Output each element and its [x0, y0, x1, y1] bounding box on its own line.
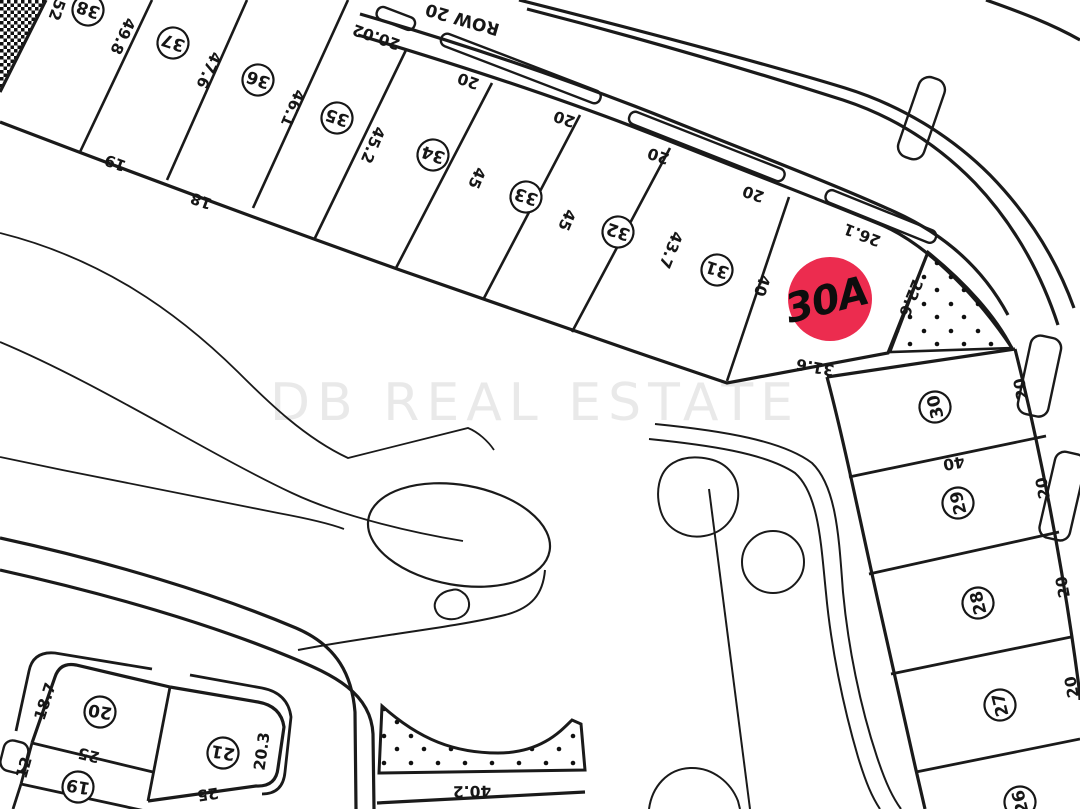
shore-curve [298, 570, 545, 650]
lot-35-marker: 35 [317, 98, 356, 137]
dim-47-6: 47.6 [192, 49, 224, 91]
lot-21-marker: 21 [205, 735, 241, 771]
dim-right-20-d: 20 [1061, 674, 1080, 699]
lot-30a-badge: 30A [781, 257, 873, 341]
lot-26-marker: 26 [1001, 783, 1039, 809]
road-upper-edge-1 [519, 0, 1074, 308]
dim-right-40: 40 [941, 452, 966, 474]
mound-arc [649, 768, 740, 809]
dim-31-6: 31.6 [795, 355, 836, 379]
lot-21-number: 21 [210, 740, 237, 764]
plat-map: DB REAL ESTATE [0, 0, 1080, 809]
setback-strip-lot-30 [1016, 334, 1063, 419]
road-upper-edge-2 [527, 9, 1058, 325]
pond-outline [360, 470, 559, 600]
dim-52: 52 [45, 0, 69, 23]
lot-38-marker: 38 [68, 0, 107, 30]
lot-20-marker: 20 [82, 694, 118, 730]
lot-31-marker: 31 [697, 250, 736, 289]
dim-street-20-d: 20 [740, 182, 766, 206]
block-left-edge-lower [13, 784, 21, 809]
dim-right-20-a: 20 [1010, 376, 1032, 401]
lot-20-number: 20 [87, 699, 114, 723]
lot-33-marker: 33 [506, 177, 545, 216]
dim-40-2: 40.2 [453, 782, 492, 801]
right-block-top-edge [827, 349, 1015, 377]
lot-36-marker: 36 [238, 60, 277, 99]
stippled-crescent-area [379, 706, 585, 773]
street-outer-edge [360, 14, 1008, 315]
leader-line [709, 489, 750, 809]
lot-28-marker: 28 [959, 584, 997, 622]
lot-30-marker: 30 [916, 388, 954, 426]
dim-front-19: 19 [102, 151, 128, 175]
dim-front-18: 18 [188, 189, 214, 213]
lot-19-number: 19 [65, 774, 92, 798]
lot-line-27-26 [916, 739, 1080, 772]
lot-29-marker: 29 [939, 484, 977, 522]
dim-street-20-c: 20 [645, 144, 671, 168]
dim-20-3: 20.3 [250, 731, 273, 771]
road-median-island [895, 74, 948, 162]
row-20-label: ROW 20 [423, 0, 502, 39]
contour-line-2 [0, 342, 463, 541]
lot-line-28-27 [891, 637, 1071, 674]
lot-line-29-28 [869, 532, 1059, 574]
lot-27-marker: 27 [981, 686, 1019, 724]
dim-45-2: 45.2 [357, 124, 389, 166]
dim-right-20-c: 20 [1052, 574, 1074, 599]
dim-45-b: 45 [554, 207, 579, 234]
tree-circle [742, 531, 804, 593]
dim-12: 12 [13, 755, 36, 781]
lot-line-35-34 [314, 50, 406, 240]
top-block-boundary [0, 122, 928, 383]
dim-street-20-b: 20 [551, 107, 577, 131]
dim-43-7: 43.7 [655, 229, 686, 271]
stream-edge-right [655, 424, 901, 809]
lot-37-marker: 37 [153, 23, 192, 62]
dim-45-a: 45 [464, 165, 489, 192]
dim-25-a: 25 [76, 744, 101, 767]
lot-line-20-21 [148, 687, 170, 801]
dim-40-side: 40 [750, 273, 774, 299]
stream-edge-left [649, 439, 880, 809]
dim-18-7: 18.7 [31, 680, 60, 722]
lower-road-outer-edge [0, 538, 356, 809]
dim-25-b: 25 [196, 783, 220, 804]
right-block-left-edge [827, 377, 925, 809]
small-pond-outline [435, 589, 469, 619]
tree-canopy-outline [658, 457, 738, 536]
dim-46-1: 46.1 [277, 87, 309, 129]
road-corner-outer-curve [986, 0, 1080, 40]
